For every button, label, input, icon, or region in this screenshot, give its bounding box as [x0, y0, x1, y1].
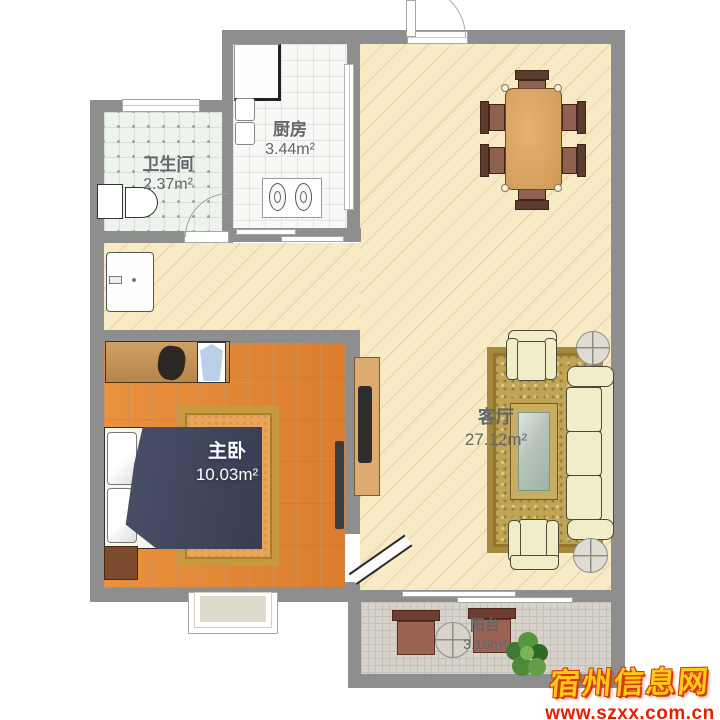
sofa-cushion-3 [566, 475, 602, 520]
bedroom-name: 主卧 [172, 440, 282, 464]
living-room-area: 27.12m² [444, 429, 548, 450]
dining-chair-bottom-back [515, 200, 549, 210]
balcony-area: 3.16m² [436, 636, 534, 654]
balcony-chair-1-seat [397, 621, 435, 655]
kitchen-sink-1 [235, 98, 255, 121]
side-table-bottom [573, 538, 608, 573]
sofa-armrest-bottom [567, 519, 614, 540]
bedroom-area: 10.03m² [172, 464, 282, 485]
bay-window-sill [199, 595, 267, 623]
dining-chair-right1-seat [562, 104, 577, 131]
table-corner-ring-4 [554, 184, 562, 192]
bathroom-name: 卫生间 [116, 154, 220, 175]
dining-chair-left1-back [480, 101, 489, 134]
dining-chair-top-back [515, 70, 549, 80]
burner-left-center [274, 191, 281, 203]
table-corner-ring-3 [501, 184, 509, 192]
kitchen-area: 3.44m² [238, 140, 342, 160]
bathroom-area: 2.37m² [116, 175, 220, 195]
table-corner-ring-2 [554, 84, 562, 92]
kitchen-slider-panel-2 [281, 236, 344, 242]
shirt-icon [200, 344, 223, 381]
balcony-label: 阳台 3.16m² [436, 617, 534, 653]
dining-table [505, 88, 562, 190]
kitchen-label: 厨房 3.44m² [238, 119, 342, 160]
dining-chair-right1-back [577, 101, 586, 134]
floorplan-canvas: 卫生间 2.37m² 厨房 3.44m² 客厅 27.12m² 主卧 10.03… [0, 0, 720, 720]
bathroom-window [122, 99, 200, 112]
entry-door-swing-arc [413, 0, 466, 37]
living-room-label: 客厅 27.12m² [444, 406, 548, 450]
wall-divider-lower [345, 582, 360, 602]
living-room-name: 客厅 [444, 406, 548, 429]
bedroom-label: 主卧 10.03m² [172, 440, 282, 485]
bathroom-label: 卫生间 2.37m² [116, 154, 220, 195]
wall-balcony-left [348, 590, 361, 688]
sofa-armrest-top [567, 366, 614, 387]
sofa-cushion-1 [566, 387, 602, 432]
balcony-chair-1-back [392, 610, 440, 621]
armchair-bottom-back [510, 555, 559, 570]
watermark-site-name: 宿州信息网 [538, 656, 720, 703]
table-corner-ring-1 [501, 84, 509, 92]
refrigerator-knob [132, 278, 136, 282]
watermark-site-url: www.szxx.com.cn [540, 703, 720, 720]
dining-chair-right2-back [577, 144, 586, 177]
balcony-slider-panel-2 [457, 597, 573, 603]
kitchen-slider-panel-1 [236, 229, 296, 235]
sofa-cushion-2 [566, 431, 602, 476]
wall-left [90, 100, 104, 602]
nightstand [104, 546, 138, 580]
armchair-bottom-seat [519, 519, 548, 559]
armchair-top-seat [517, 341, 546, 381]
kitchen-name: 厨房 [238, 119, 342, 140]
side-table-top [576, 331, 610, 365]
kitchen-glass-panel [344, 64, 354, 210]
dining-chair-left2-seat [489, 147, 505, 174]
living-room-tv [358, 386, 372, 463]
dining-chair-right2-seat [562, 147, 577, 174]
refrigerator-handle [109, 276, 122, 284]
sofa-back [600, 369, 614, 539]
dining-chair-left2-back [480, 144, 489, 177]
bedroom-tv [335, 441, 344, 529]
dining-chair-left1-seat [489, 104, 505, 131]
kitchen-counter [234, 44, 281, 101]
balcony-name: 阳台 [436, 617, 534, 636]
watermark: 宿州信息网 www.szxx.com.cn [540, 658, 720, 720]
burner-right-center [300, 191, 307, 203]
